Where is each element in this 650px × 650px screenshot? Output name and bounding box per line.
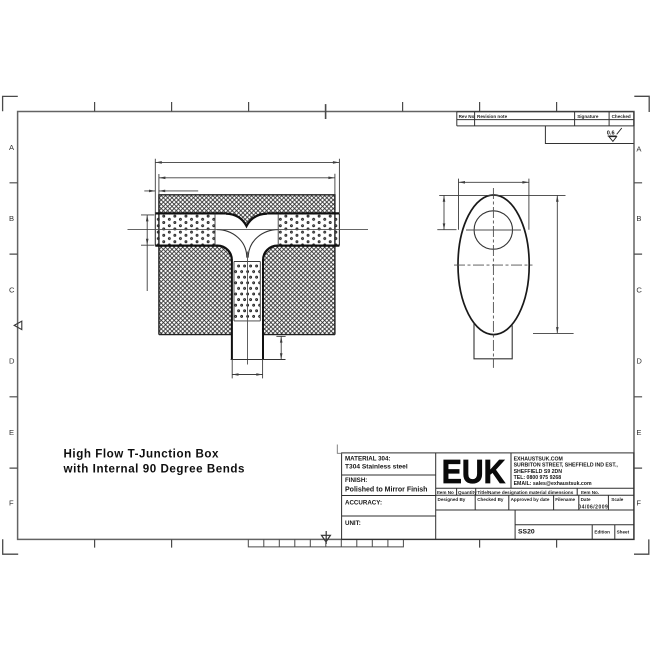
svg-text:Approved by date: Approved by date xyxy=(511,497,550,502)
svg-text:Sheet: Sheet xyxy=(617,530,630,535)
svg-text:SS20: SS20 xyxy=(518,529,535,536)
svg-text:FINISH:: FINISH: xyxy=(345,477,367,484)
svg-text:High Flow T-Junction Box: High Flow T-Junction Box xyxy=(64,448,220,461)
svg-text:Revision note: Revision note xyxy=(477,114,508,119)
svg-text:Rev No: Rev No xyxy=(459,114,475,119)
svg-text:E: E xyxy=(9,428,14,437)
svg-text:C: C xyxy=(636,286,642,295)
svg-text:with Internal 90 Degree Bends: with Internal 90 Degree Bends xyxy=(63,463,245,476)
svg-text:Checked: Checked xyxy=(612,114,631,119)
svg-text:SURBITON STREET, SHEFFIELD IND: SURBITON STREET, SHEFFIELD IND EST., xyxy=(514,462,619,468)
svg-text:F: F xyxy=(9,498,14,507)
svg-text:B: B xyxy=(9,214,14,223)
svg-text:Quantity: Quantity xyxy=(458,490,477,495)
svg-text:D: D xyxy=(636,356,642,365)
svg-text:F: F xyxy=(636,498,641,507)
svg-text:Edition: Edition xyxy=(594,530,610,535)
svg-text:EMAIL: sales@exhaustsuk.com: EMAIL: sales@exhaustsuk.com xyxy=(514,481,592,487)
svg-text:Checked By: Checked By xyxy=(477,497,504,502)
svg-text:ACCURACY:: ACCURACY: xyxy=(345,499,382,506)
svg-text:Polished to Mirror Finish: Polished to Mirror Finish xyxy=(345,486,427,493)
svg-text:B: B xyxy=(636,214,641,223)
svg-text:MATERIAL 304:: MATERIAL 304: xyxy=(345,456,391,463)
svg-text:Designed By: Designed By xyxy=(438,497,466,502)
svg-text:T304 Stainless steel: T304 Stainless steel xyxy=(345,463,408,470)
svg-text:04/06/2009: 04/06/2009 xyxy=(578,504,608,510)
svg-text:UNIT:: UNIT: xyxy=(345,520,361,527)
svg-text:Item No: Item No xyxy=(437,490,454,495)
svg-text:Scale: Scale xyxy=(611,497,623,502)
svg-text:EUK: EUK xyxy=(442,454,506,491)
svg-text:Filename: Filename xyxy=(555,497,575,502)
svg-text:Title/Name designation materia: Title/Name designation material dimensio… xyxy=(477,490,573,495)
svg-text:C: C xyxy=(9,286,15,295)
svg-text:Signature: Signature xyxy=(577,114,599,119)
svg-text:Date: Date xyxy=(581,497,591,502)
svg-text:Item No.: Item No. xyxy=(581,490,599,495)
svg-text:TEL: 0800 975 9268: TEL: 0800 975 9268 xyxy=(514,475,562,481)
svg-text:D: D xyxy=(9,356,15,365)
svg-text:E: E xyxy=(636,428,641,437)
